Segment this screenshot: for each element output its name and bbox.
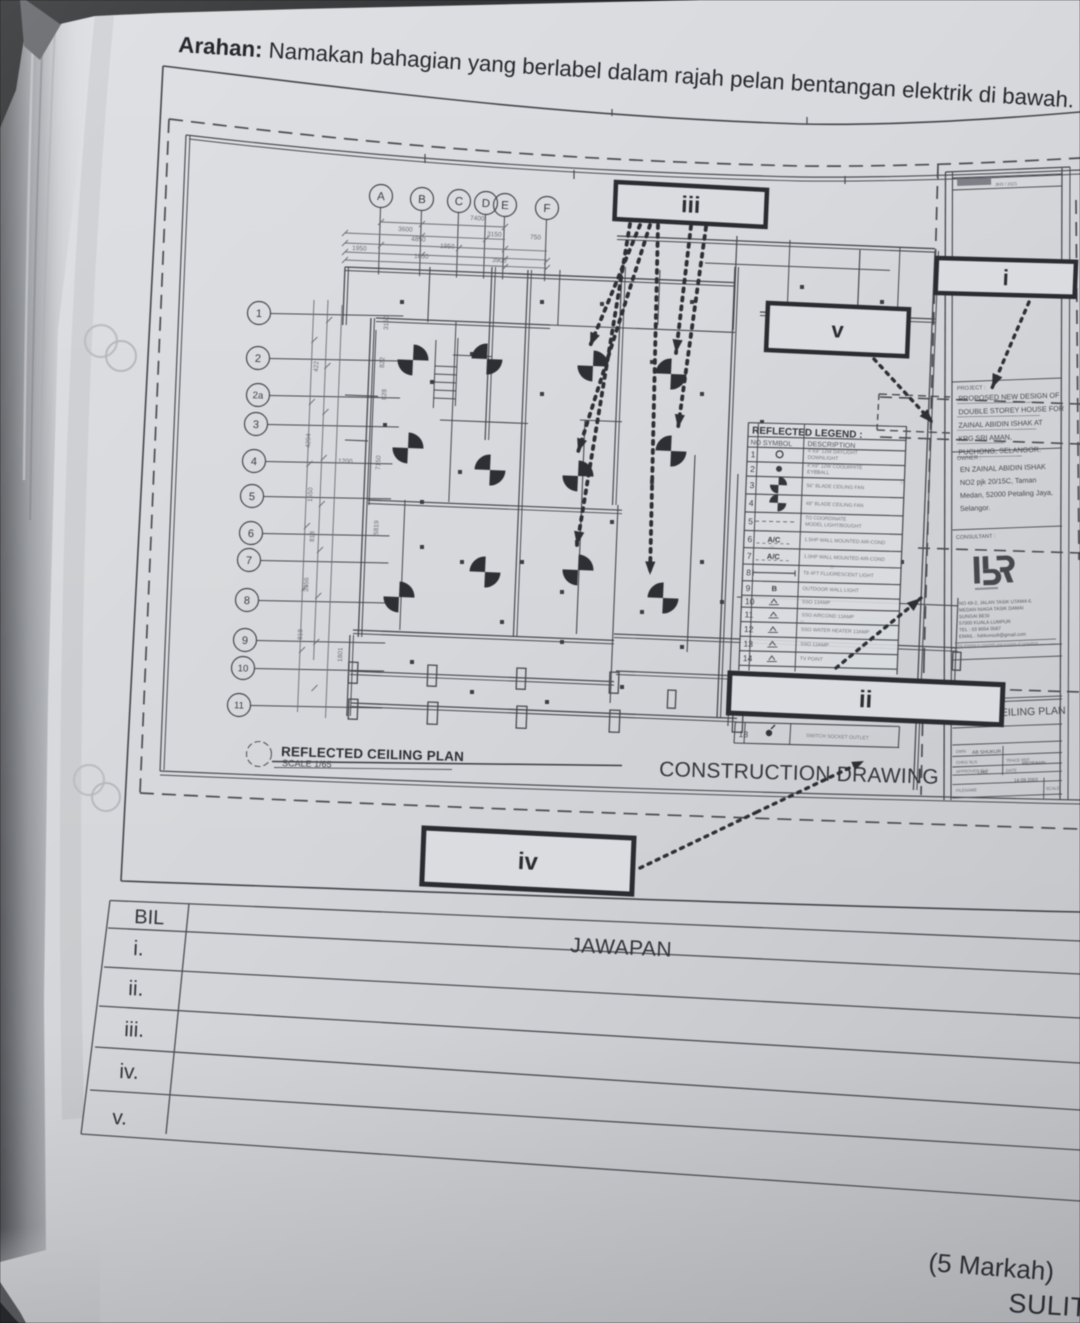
svg-text:11: 11 (234, 700, 244, 711)
svg-text:i.: i. (133, 937, 145, 960)
svg-text:EILING PLAN: EILING PLAN (1001, 705, 1066, 719)
svg-text:6: 6 (747, 534, 752, 544)
svg-text:SSO 13AMP: SSO 13AMP (800, 642, 829, 649)
svg-text:818: 818 (297, 629, 304, 640)
svg-text:11: 11 (744, 609, 753, 619)
svg-text:3150: 3150 (487, 231, 502, 239)
svg-text:1950: 1950 (440, 243, 455, 251)
svg-text:3356: 3356 (303, 577, 311, 592)
svg-text:1200: 1200 (338, 458, 353, 466)
svg-text:FILENAME: FILENAME (956, 787, 977, 793)
svg-text:iii.: iii. (124, 1018, 145, 1042)
svg-text:9: 9 (745, 583, 750, 593)
svg-text:SCALE 1/65: SCALE 1/65 (282, 758, 332, 769)
svg-text:3: 3 (253, 419, 260, 431)
svg-text:iv.: iv. (119, 1060, 140, 1084)
svg-text:JAWAPAN: JAWAPAN (570, 934, 673, 962)
svg-text:CHKD SLN: CHKD SLN (956, 759, 977, 765)
svg-text:E: E (501, 200, 510, 212)
svg-text:JKR / 2021: JKR / 2021 (995, 181, 1018, 187)
svg-text:DOWNLIGHT: DOWNLIGHT (808, 455, 839, 462)
svg-text:SSO 13AMP: SSO 13AMP (802, 599, 831, 606)
svg-text:v.: v. (112, 1106, 128, 1130)
svg-text:1950: 1950 (352, 245, 367, 253)
svg-text:SCALE: SCALE (1046, 786, 1060, 791)
svg-text:6: 6 (248, 528, 255, 540)
svg-text:14.09.2002: 14.09.2002 (1014, 777, 1039, 784)
svg-text:C: C (455, 196, 464, 208)
svg-text:SUNGAI BESI: SUNGAI BESI (959, 613, 990, 620)
svg-text:4: 4 (749, 498, 754, 508)
svg-text:2: 2 (750, 464, 755, 474)
svg-text:828: 828 (381, 389, 388, 400)
svg-text:F: F (543, 203, 551, 215)
svg-text:OWNER :: OWNER : (957, 455, 982, 462)
svg-text:750: 750 (530, 234, 542, 241)
svg-text:18: 18 (738, 729, 748, 739)
svg-text:v: v (831, 317, 845, 343)
svg-text:422: 422 (313, 361, 320, 372)
svg-text:9: 9 (242, 635, 249, 647)
svg-text:8: 8 (746, 567, 751, 577)
svg-text:i: i (1002, 265, 1009, 290)
svg-text:7: 7 (246, 555, 253, 567)
svg-text:iii: iii (681, 191, 701, 218)
svg-text:10: 10 (237, 663, 248, 674)
svg-text:4: 4 (251, 456, 258, 468)
svg-text:2: 2 (255, 353, 262, 365)
svg-text:12: 12 (744, 624, 754, 634)
svg-text:2a: 2a (252, 390, 264, 401)
svg-text:ii.: ii. (128, 977, 144, 1001)
svg-text:TV POINT: TV POINT (800, 656, 823, 663)
svg-text:14: 14 (743, 653, 753, 663)
svg-text:3900: 3900 (492, 257, 507, 265)
svg-text:AB SHUKUR: AB SHUKUR (972, 749, 1002, 756)
svg-text:5819: 5819 (373, 520, 381, 535)
svg-text:1: 1 (256, 308, 263, 320)
svg-text:PROJECT :: PROJECT : (957, 385, 986, 392)
svg-text:7400: 7400 (470, 215, 485, 223)
svg-text:1650: 1650 (414, 253, 429, 261)
svg-text:SULIT: SULIT (1008, 1288, 1080, 1323)
svg-text:1: 1 (751, 449, 756, 459)
svg-text:D: D (482, 198, 491, 210)
svg-text:3150: 3150 (383, 315, 391, 330)
svg-text:ii: ii (858, 686, 873, 714)
svg-text:BIL: BIL (134, 906, 165, 929)
svg-text:iv: iv (517, 848, 539, 876)
svg-text:4850: 4850 (411, 236, 426, 244)
svg-text:5: 5 (249, 491, 256, 503)
svg-text:822: 822 (379, 357, 386, 368)
svg-text:DATE: DATE (1006, 768, 1017, 773)
svg-text:A: A (377, 191, 386, 203)
svg-text:EYEBALL: EYEBALL (807, 469, 830, 476)
svg-text:LHG: LHG (978, 770, 988, 775)
svg-text:B: B (418, 194, 427, 206)
svg-text:1550: 1550 (307, 487, 315, 502)
svg-text:REDRAWN: REDRAWN (1022, 760, 1046, 766)
svg-text:7150: 7150 (375, 455, 383, 470)
svg-text:3600: 3600 (398, 226, 413, 234)
svg-text:8: 8 (244, 595, 251, 607)
svg-text:4294: 4294 (305, 433, 313, 448)
svg-text:DWN: DWN (956, 749, 966, 754)
svg-text:818: 818 (309, 531, 316, 542)
svg-text:7: 7 (747, 551, 752, 561)
svg-text:B: B (771, 584, 777, 593)
svg-text:Selangor.: Selangor. (960, 503, 991, 513)
svg-text:10: 10 (745, 596, 755, 606)
svg-text:13: 13 (743, 639, 753, 649)
svg-text:5: 5 (748, 516, 753, 526)
svg-text:1801: 1801 (337, 647, 345, 662)
svg-text:3: 3 (749, 480, 754, 490)
